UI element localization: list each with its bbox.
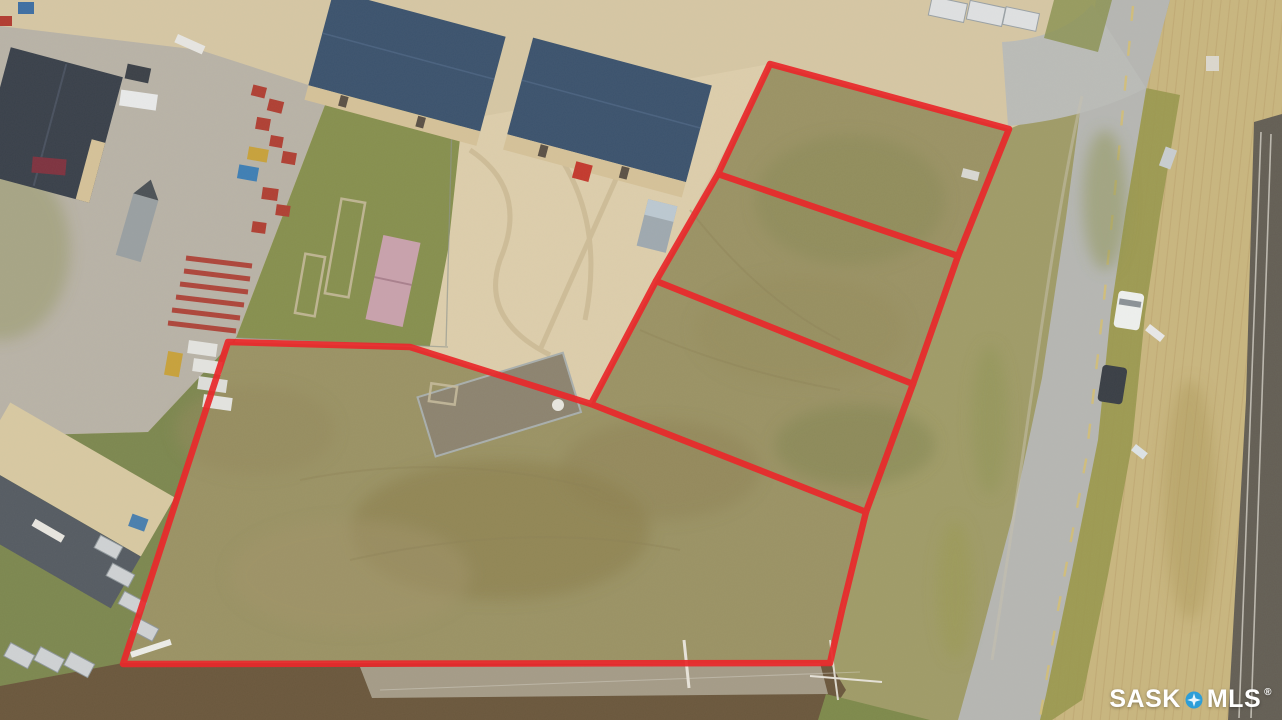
- photo-grain: [0, 0, 1282, 720]
- watermark-mls-text: MLS: [1207, 685, 1261, 714]
- watermark-sask-text: SASK: [1109, 685, 1180, 714]
- registered-symbol: ®: [1264, 687, 1272, 698]
- aerial-photo-stage: SASK MLS ®: [0, 0, 1282, 720]
- watermark: SASK MLS ®: [1109, 685, 1272, 714]
- aerial-photo: [0, 0, 1282, 720]
- mls-compass-star-icon: [1185, 691, 1203, 709]
